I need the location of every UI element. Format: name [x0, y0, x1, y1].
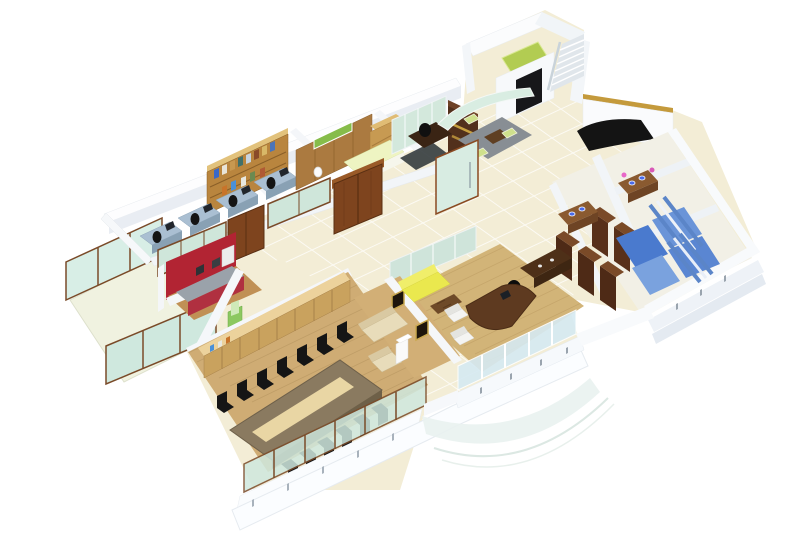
- workstation-person-2: [191, 213, 200, 225]
- workstation-person-1: [153, 231, 162, 243]
- workstation-person-3: [229, 195, 238, 207]
- lobby-tile-grid-line: [780, 0, 800, 192]
- sink-2: [579, 207, 585, 211]
- credenza-item-2: [550, 259, 554, 262]
- floorplan-page: [0, 0, 800, 550]
- railing-post-3: [322, 466, 324, 474]
- railing-post-1: [252, 499, 254, 507]
- right-parapet-post-1: [676, 303, 678, 310]
- pantry-left-wall: [158, 264, 164, 312]
- exec-railing-post-2: [510, 373, 512, 380]
- flower-pot-2: [650, 168, 655, 173]
- credenza-item-1: [538, 265, 542, 268]
- lobby-tile-grid-line: [720, 10, 800, 220]
- workstation-person-4: [267, 177, 276, 189]
- exec-railing-post-3: [540, 359, 542, 366]
- railing-post-5: [392, 433, 394, 441]
- manager-chair: [419, 123, 431, 137]
- sink-3: [629, 181, 635, 185]
- reception-chair-1: [314, 167, 322, 177]
- sink-1: [569, 212, 575, 216]
- floorplan-render: [0, 0, 800, 550]
- railing-post-2: [287, 483, 289, 491]
- sink-4: [639, 176, 645, 180]
- right-parapet-post-2: [700, 289, 702, 296]
- flower-pot-1: [622, 173, 627, 178]
- lobby-tile-grid-line: [750, 0, 800, 206]
- exec-railing-post-1: [480, 387, 482, 394]
- right-front-band: [576, 306, 654, 346]
- exec-railing-post-4: [566, 347, 568, 354]
- railing-post-4: [357, 450, 359, 458]
- right-parapet-post-3: [724, 275, 726, 282]
